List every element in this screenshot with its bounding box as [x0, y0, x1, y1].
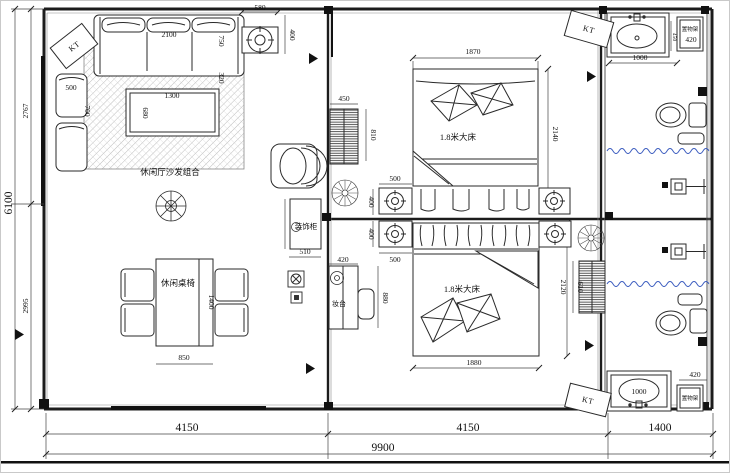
label-rack-top: 置物架 — [682, 25, 699, 33]
armchair-left-2 — [56, 123, 87, 171]
shower-curtain-bottom — [607, 282, 709, 287]
arrow-marker — [587, 71, 596, 82]
dim-overall-height: 6100 — [3, 191, 15, 214]
dim-rack-bottom-width: 420 — [689, 370, 701, 379]
bathroom-partition-lines — [605, 10, 707, 408]
toilet-bottom — [656, 294, 707, 335]
floor-plan-canvas: 4150 4150 1400 9900 6100 2767 2995 2100 … — [0, 0, 730, 473]
shower-curtain-top — [607, 149, 709, 154]
dim-bed2-width: 1880 — [467, 358, 482, 367]
label-bed2: 1.8米大床 — [444, 284, 481, 294]
ceiling-light-center — [156, 191, 186, 221]
bed-runner — [453, 189, 469, 211]
dim-nightstand-width: 500 — [389, 174, 401, 183]
bed-runner — [517, 189, 529, 210]
bathrooms — [607, 13, 709, 411]
ceiling-fan — [578, 225, 604, 251]
dim-coffee-table-length: 1300 — [165, 91, 180, 100]
dim-dresser-height: 880 — [381, 292, 390, 304]
shoe-cabinet — [330, 109, 358, 164]
dim-deco-cabinet: 510 — [299, 247, 311, 256]
dim-overall-width: 9900 — [372, 442, 395, 454]
floor-plan-drawing: 4150 4150 1400 9900 6100 2767 2995 2100 … — [1, 1, 730, 473]
nightstand — [379, 221, 412, 247]
nightstand — [379, 188, 412, 214]
dim-ceiling-lamp-height: 400 — [288, 29, 297, 41]
dining-chair — [215, 269, 248, 301]
living-area — [56, 15, 327, 346]
dim-sofa-width: 2100 — [162, 30, 177, 39]
dim-armchair-depth: 700 — [83, 105, 92, 117]
shower-head-top — [662, 179, 706, 194]
dresser-stool — [358, 289, 374, 319]
arrow-marker — [306, 363, 315, 374]
dim-height-lower: 2995 — [21, 298, 30, 313]
frame-bottom-line — [1, 461, 730, 464]
bath-mat — [678, 294, 702, 305]
dim-bed1-width: 1870 — [466, 47, 481, 56]
toilet-top — [656, 103, 706, 144]
switch-symbol — [288, 271, 304, 287]
dim-wardrobe-height: 610 — [576, 281, 585, 293]
dresser — [329, 266, 374, 329]
dim-rack-top-width: 420 — [685, 35, 697, 44]
socket-symbol — [291, 292, 302, 303]
dim-nightstand-width: 500 — [389, 255, 401, 264]
armchair-left-1 — [56, 74, 87, 117]
dim-span-living: 4150 — [176, 422, 199, 434]
dim-span-bedrooms: 4150 — [457, 422, 480, 434]
nightstand — [539, 221, 571, 247]
shower-head-bottom — [662, 244, 706, 259]
dim-nightstand-depth: 400 — [367, 196, 376, 208]
bed-runner — [489, 189, 504, 211]
label-deco-cabinet: 装饰柜 — [295, 221, 318, 231]
dim-shoe-cabinet-height: 810 — [369, 129, 378, 141]
ceiling-lamp — [242, 26, 278, 54]
dim-dining-width: 850 — [178, 353, 190, 362]
dining-chair — [121, 304, 154, 336]
dim-nightstand-depth: 400 — [367, 228, 376, 240]
dim-span-bath: 1400 — [649, 422, 672, 434]
dining-chair — [121, 269, 154, 301]
dim-height-upper: 2767 — [21, 103, 30, 118]
tub-chair — [271, 144, 327, 188]
dim-rack-depth: 450 — [671, 33, 677, 42]
dim-sofa-depth: 750 — [217, 35, 226, 47]
arrow-marker — [309, 53, 318, 64]
bath-mat — [678, 133, 704, 144]
label-sofa-area: 休闲厅沙发组合 — [140, 167, 200, 177]
dim-vanity-bottom-width: 1000 — [632, 387, 647, 396]
nightstand — [539, 188, 570, 214]
vanity-top — [607, 13, 669, 57]
label-bed1: 1.8米大床 — [440, 132, 477, 142]
dim-coffee-table-width: 680 — [141, 107, 150, 119]
dim-ceiling-lamp-width: 580 — [254, 3, 266, 12]
dim-vanity-top-width: 1000 — [633, 53, 648, 62]
arrow-marker — [585, 340, 594, 351]
dim-bed2-length: 2120 — [559, 280, 568, 295]
ceiling-fan — [332, 180, 358, 206]
label-dresser: 妆台 — [332, 299, 346, 308]
dim-armchair-width: 500 — [65, 83, 77, 92]
dim-dresser-width: 420 — [337, 255, 349, 264]
dim-bed1-length: 2140 — [551, 127, 560, 142]
dining-table — [156, 259, 213, 346]
arrow-marker — [15, 329, 24, 340]
dining-chair — [215, 304, 248, 336]
dim-shoe-cabinet-width: 450 — [338, 94, 350, 103]
dim-dining-length: 1400 — [207, 295, 216, 310]
dim-sofa-rug-gap: 320 — [217, 72, 226, 84]
storage-rack-top — [677, 17, 703, 51]
bed-runner — [421, 189, 435, 211]
label-dining-set: 休闲桌椅 — [161, 278, 196, 288]
label-rack-bottom: 置物架 — [682, 394, 699, 402]
